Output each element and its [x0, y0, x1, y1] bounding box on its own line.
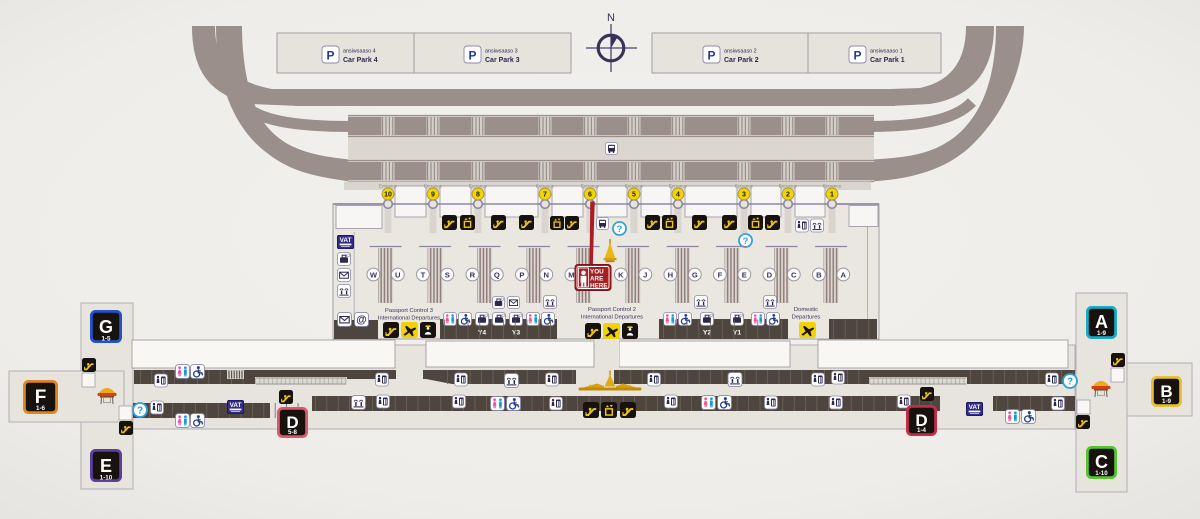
svg-text:8: 8	[476, 192, 480, 199]
svg-text:10: 10	[384, 192, 392, 199]
svg-text:Car Park 1: Car Park 1	[870, 57, 905, 64]
svg-text:Passport Control 2: Passport Control 2	[588, 307, 636, 313]
svg-text:Departures: Departures	[792, 315, 821, 321]
svg-text:G: G	[99, 317, 113, 337]
svg-text:N: N	[607, 12, 615, 24]
svg-text:4: 4	[676, 192, 680, 199]
svg-text:P: P	[853, 49, 861, 63]
svg-text:5-8: 5-8	[288, 429, 298, 436]
svg-text:Car Park 2: Car Park 2	[724, 57, 759, 64]
svg-text:5: 5	[632, 192, 636, 199]
svg-text:U: U	[395, 270, 401, 279]
svg-text:P: P	[707, 49, 715, 63]
svg-text:W: W	[370, 270, 378, 279]
svg-text:B: B	[816, 270, 822, 279]
svg-text:ansiwsaaso 2: ansiwsaaso 2	[724, 49, 757, 55]
svg-text:Car Park 3: Car Park 3	[485, 57, 520, 64]
svg-text:1: 1	[830, 192, 834, 199]
svg-text:Y2: Y2	[703, 330, 712, 337]
svg-text:International Departures: International Departures	[378, 316, 440, 322]
svg-text:ansiwsaaso 3: ansiwsaaso 3	[485, 49, 518, 55]
svg-text:1-10: 1-10	[1095, 470, 1108, 477]
svg-text:1-9: 1-9	[1162, 398, 1172, 405]
svg-text:ansiwsaaso 4: ansiwsaaso 4	[343, 49, 376, 55]
svg-text:2: 2	[786, 192, 790, 199]
svg-text:Passport Control 3: Passport Control 3	[385, 308, 433, 314]
svg-text:F: F	[718, 270, 723, 279]
svg-text:3: 3	[742, 192, 746, 199]
svg-text:S: S	[445, 270, 450, 279]
svg-text:6: 6	[588, 192, 592, 199]
svg-text:Q: Q	[494, 270, 500, 279]
svg-text:Domestic: Domestic	[794, 307, 818, 313]
svg-text:H: H	[668, 270, 673, 279]
svg-text:1-5: 1-5	[102, 336, 112, 343]
svg-text:P: P	[468, 49, 476, 63]
svg-text:T: T	[421, 270, 426, 279]
svg-text:C: C	[791, 270, 797, 279]
svg-text:P: P	[519, 270, 524, 279]
svg-text:E: E	[100, 456, 112, 476]
svg-text:ansiwsaaso 1: ansiwsaaso 1	[870, 49, 903, 55]
svg-text:International Departures: International Departures	[581, 315, 643, 321]
svg-text:HERE: HERE	[590, 283, 608, 290]
svg-text:P: P	[326, 49, 334, 63]
svg-text:M: M	[568, 270, 574, 279]
svg-text:D: D	[767, 270, 773, 279]
svg-text:Y4: Y4	[478, 330, 487, 337]
svg-text:N: N	[544, 270, 549, 279]
svg-text:1-4: 1-4	[917, 427, 927, 434]
svg-text:Car Park 4: Car Park 4	[343, 57, 378, 64]
svg-text:Y3: Y3	[512, 330, 521, 337]
svg-text:R: R	[470, 270, 476, 279]
svg-text:1-10: 1-10	[100, 475, 113, 482]
svg-text:YOU: YOU	[590, 269, 604, 276]
svg-text:1-9: 1-9	[1097, 330, 1107, 337]
svg-text:G: G	[692, 270, 698, 279]
svg-text:7: 7	[543, 192, 547, 199]
svg-text:9: 9	[431, 192, 435, 199]
svg-text:1-6: 1-6	[36, 405, 46, 412]
svg-text:K: K	[618, 270, 624, 279]
svg-text:A: A	[841, 270, 847, 279]
svg-text:ARE: ARE	[590, 276, 603, 283]
svg-text:E: E	[742, 270, 747, 279]
svg-text:J: J	[643, 270, 647, 279]
